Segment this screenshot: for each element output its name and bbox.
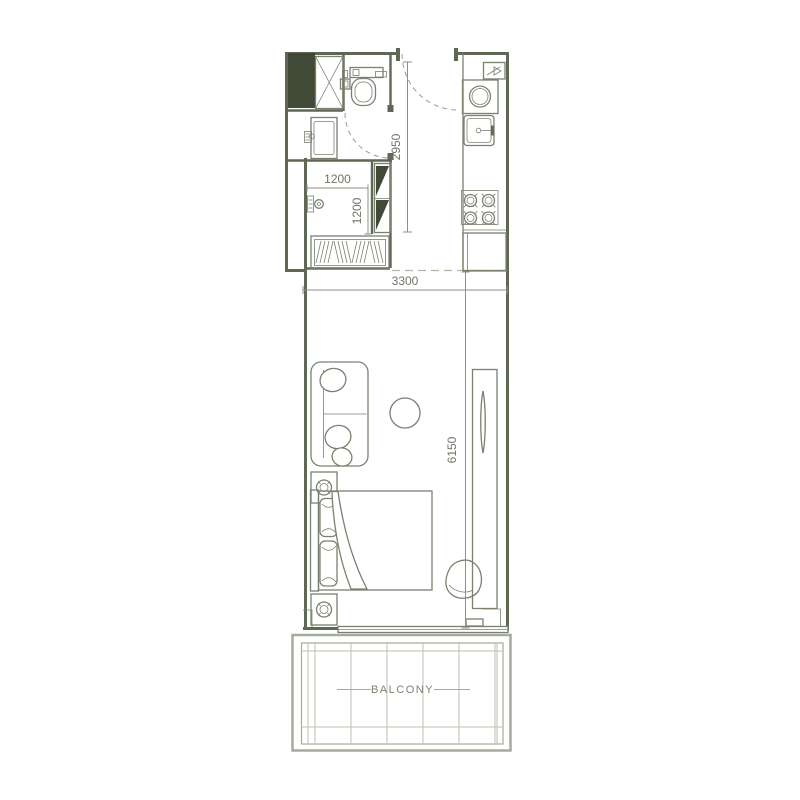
balcony-door [338,619,508,633]
shower-glass-x [316,57,344,109]
toilet-cistern [350,68,383,78]
dim-line-utility-depth [365,188,372,234]
bath-door-jamb-top [388,105,394,112]
burner-ticks [464,194,496,225]
paper-holder [376,72,387,78]
vanity-basin [314,122,334,155]
shelf-triangle-top [376,166,389,196]
counter-outline [463,54,507,272]
bathroom [288,53,387,159]
vanity-counter [311,118,337,159]
dim-label-utility-width: 1200 [324,172,351,186]
sink-spout [476,128,481,133]
balcony: BALCONY [293,635,511,751]
coffee-table [390,398,420,428]
bathroom-door-swing [345,113,390,158]
living-area [311,362,497,609]
kitchen [462,54,508,272]
hanging-clothes-hatch [316,241,383,263]
washing-machine [463,80,499,114]
nightstand-bottom [311,594,337,625]
sofa-pillow [322,423,353,452]
tall-cabinet [463,233,506,271]
floor-plan-canvas: BALCONY 2950 1200 1200 3300 6150 [0,0,800,800]
balcony-label: BALCONY [371,684,434,696]
sliding-door-panel-overlap [466,619,483,626]
wardrobe [311,236,389,269]
service-panel-glyph [487,67,501,75]
toilet-bowl-inner [355,82,372,102]
laundry-niche [308,196,324,212]
bidet-sprayer [341,79,351,89]
toilet-flush-button [353,70,359,76]
lounge-chair-seam [449,585,473,592]
sink-faucet-base [491,126,494,136]
shelf-triangle-bottom [376,200,389,230]
dim-label-living-width: 3300 [392,274,419,288]
floor-plan-page: BALCONY 2950 1200 1200 3300 6150 [0,0,800,800]
water-outlet [315,200,324,209]
dim-line-living-length [462,272,470,628]
dim-line-hallway [403,62,412,232]
water-valve-hatch [309,200,313,208]
lamp-inner [320,484,328,492]
dim-label-utility-depth: 1200 [350,197,364,224]
burners [464,194,496,225]
dim-label-hallway: 2950 [389,133,403,160]
sofa-pillow [317,366,348,395]
bed-headboard [311,490,319,591]
tv-screen [481,391,486,453]
washing-machine-drum [470,86,491,107]
washing-machine-drum-inner [472,89,488,105]
structural-shaft [288,53,315,108]
water-outlet-center [318,203,321,206]
lamp-inner [320,606,328,614]
dim-label-living-length: 6150 [445,436,459,463]
entrance-jamb-right [454,48,458,61]
lounge-chair [446,560,482,598]
entrance-jamb-left [396,48,400,61]
shelf-unit [375,164,391,233]
sleeping-area [311,472,433,625]
